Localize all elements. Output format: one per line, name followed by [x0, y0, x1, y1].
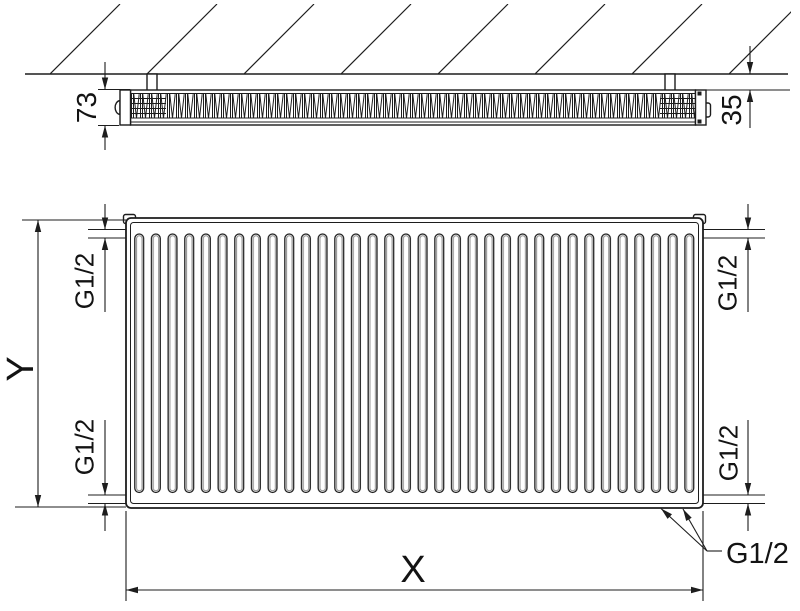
drawing-canvas: 73 35 [0, 0, 800, 611]
end-cap-left [120, 90, 131, 125]
end-cap-rivet-top [698, 92, 702, 96]
end-cap-rivet-bottom [698, 120, 702, 124]
pipe-stub-top-left [88, 230, 126, 239]
connection-label-bottom-left: G1/2 [70, 419, 100, 475]
mounting-bracket-left [147, 74, 157, 91]
end-cap-left-lug [115, 101, 120, 115]
height-label: Y [0, 356, 42, 381]
convector-fins [131, 94, 696, 119]
pipe-stub-bottom-left [88, 495, 126, 504]
depth-label: 73 [71, 92, 102, 123]
connection-dim-bottom-right: G1/2 [714, 420, 752, 531]
radiator-top-view [115, 90, 710, 125]
connection-label-top-left: G1/2 [70, 253, 100, 309]
connection-label-bottom-right: G1/2 [714, 425, 744, 481]
wall-hatch [25, 4, 791, 74]
connection-dim-top-right: G1/2 [713, 204, 752, 312]
radiator-dimension-drawing: 73 35 [0, 0, 800, 611]
front-panel-grooves [131, 233, 696, 494]
front-view: G1/2 G1/2 G1/2 G1/2 [0, 204, 789, 601]
connection-label-top-right: G1/2 [713, 255, 743, 311]
connection-dim-bottom-left: G1/2 [70, 419, 109, 531]
mounting-bracket-right [665, 74, 675, 91]
wall-gap-label: 35 [716, 94, 747, 125]
top-view: 73 35 [25, 4, 791, 150]
pipe-stub-top-right [703, 230, 765, 239]
height-dimension: Y [0, 220, 126, 507]
bottom-connections-leader: G1/2 [661, 509, 789, 571]
connection-label-bottom: G1/2 [726, 538, 789, 570]
width-dimension: X [126, 511, 703, 601]
width-label: X [400, 549, 425, 591]
pipe-stub-bottom-right [703, 495, 765, 504]
